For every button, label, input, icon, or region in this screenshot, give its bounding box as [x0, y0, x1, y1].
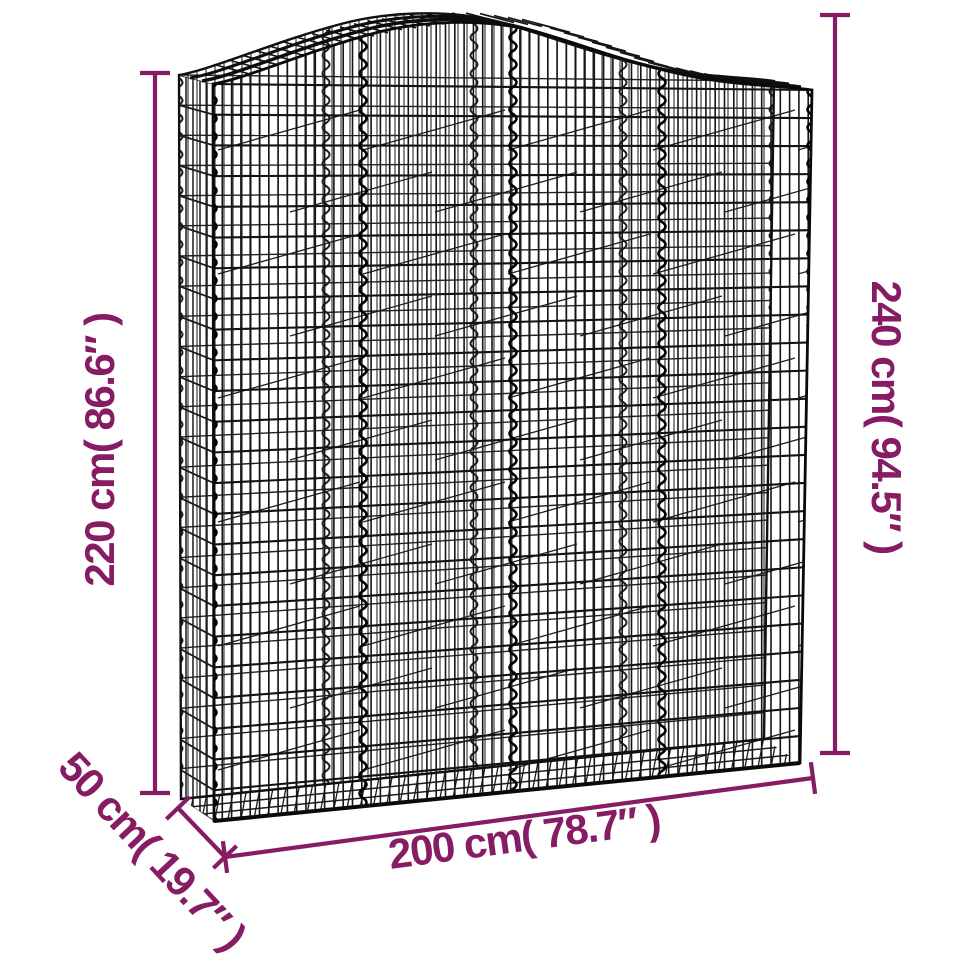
height-right-dimension-line	[820, 15, 850, 753]
height-right-label: 240 cm( 94.5″ )	[865, 280, 907, 553]
height-left-label: 220 cm( 86.6″ )	[79, 313, 121, 586]
back-face-mesh	[176, 4, 777, 870]
height-left-dimension-line	[140, 73, 170, 793]
product-dimension-diagram: 220 cm( 86.6″ ) 240 cm( 94.5″ ) 200 cm( …	[0, 0, 955, 955]
